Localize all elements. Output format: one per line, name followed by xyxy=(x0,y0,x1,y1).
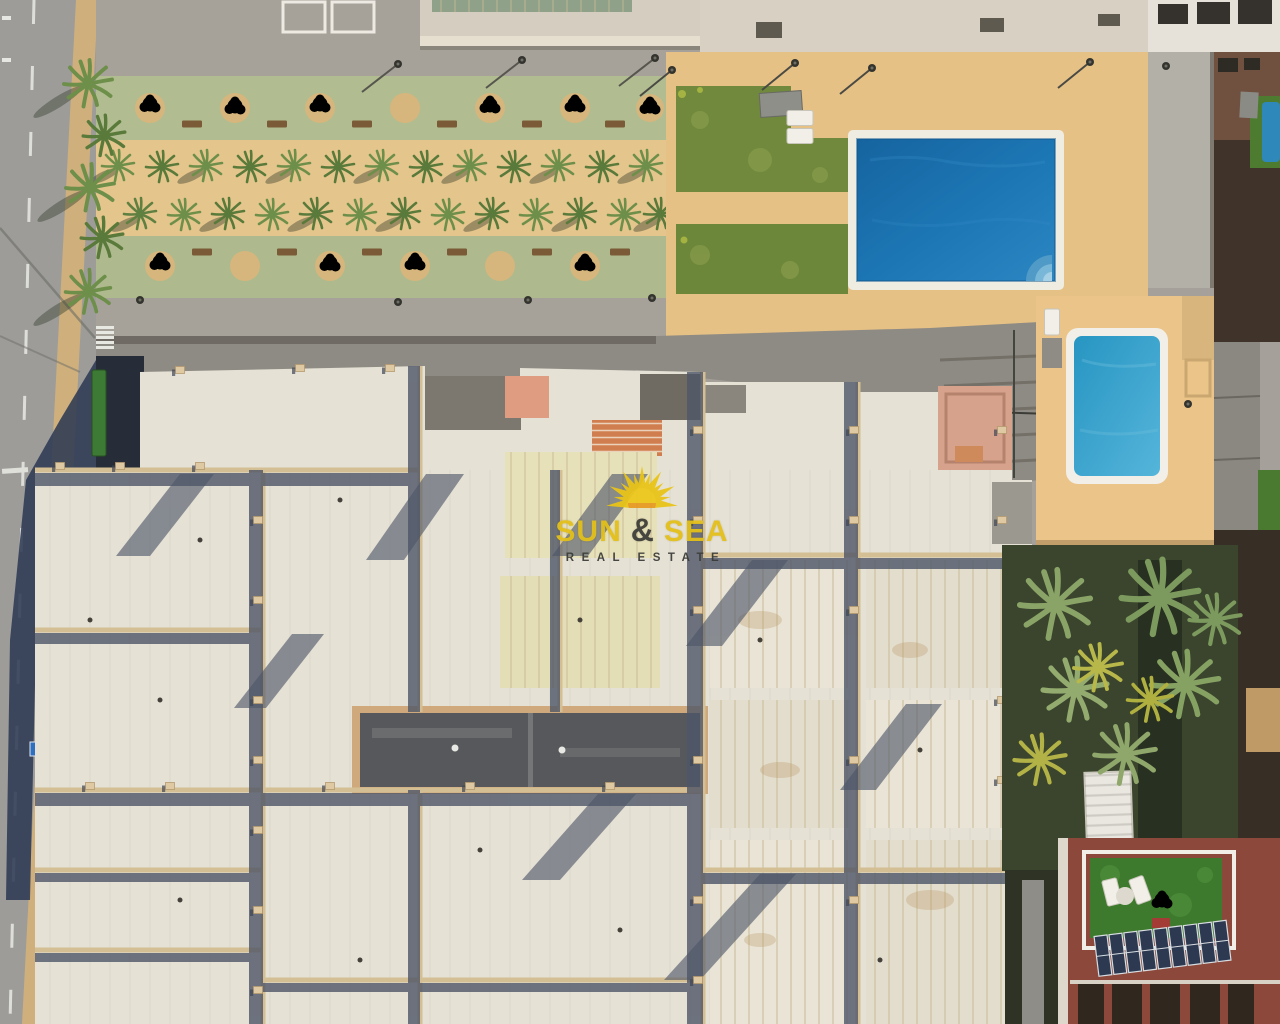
neighbor-pool xyxy=(1262,102,1280,162)
north-buildings xyxy=(420,0,1280,58)
apartment-building-roof xyxy=(6,326,1032,1024)
park-promenade xyxy=(31,0,676,336)
terracotta-patio xyxy=(505,376,549,418)
terracotta-stairs xyxy=(592,420,662,456)
rooftop-terrace-building xyxy=(1058,838,1280,1024)
palm-courtyard xyxy=(1002,545,1241,871)
central-skylight xyxy=(352,706,708,794)
aerial-photo: SUN & SEA REAL ESTATE xyxy=(0,0,1280,1024)
small-pool-terrace xyxy=(1036,296,1214,566)
pool-garden xyxy=(640,52,1148,336)
green-dumpster xyxy=(92,370,106,456)
aerial-photo-scene xyxy=(0,0,1280,1024)
terrace-table xyxy=(1116,887,1134,905)
sun-lounger xyxy=(787,111,813,126)
south-alley xyxy=(1005,870,1058,1024)
sun-lounger xyxy=(1045,309,1060,335)
main-pool xyxy=(848,130,1064,290)
kids-pool xyxy=(1066,328,1168,484)
lounger-gray xyxy=(1042,338,1062,368)
sun-lounger xyxy=(787,129,813,144)
concrete-path xyxy=(1148,52,1214,288)
